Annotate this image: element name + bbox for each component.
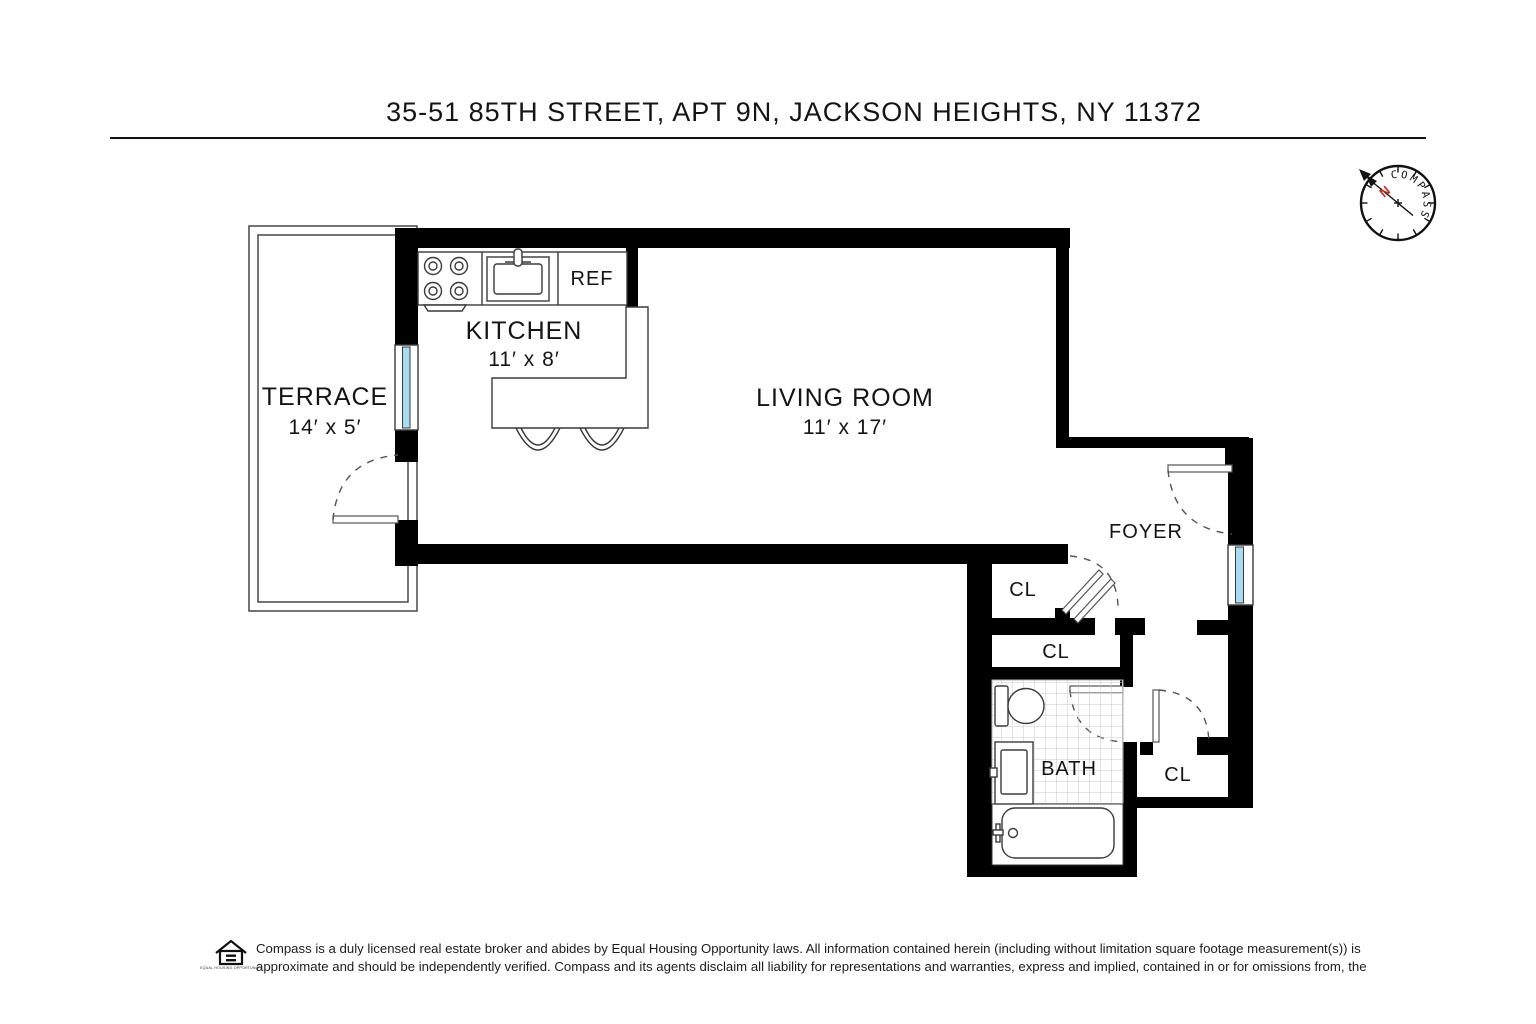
wall-bath-right [1123,742,1137,877]
terrace-label: TERRACE [262,383,388,411]
wall-closet3-top-left [1140,742,1153,755]
wall-top [395,228,1070,248]
door-closet-foyer-bifold [1062,556,1118,623]
stool-icon-2 [580,428,624,450]
stool-icon-1 [516,428,560,450]
door-closet-corner [1153,690,1209,742]
wall-kitchen-stub [626,248,638,307]
wall-entry-jamb [1225,438,1253,468]
toilet-icon [995,686,1044,726]
wall-corridor-left [1120,635,1133,687]
equal-housing-logo: EQUAL HOUSING OPPORTUNITY [200,941,262,970]
bath-label: BATH [1041,758,1097,780]
disclaimer-line-1: Compass is a duly licensed real estate b… [256,941,1361,956]
wall-kitchen-left-upper [395,248,418,345]
wall-closet-column-left [967,544,992,877]
closet-foyer-label: CL [1009,579,1037,601]
disclaimer-line-2: approximate and should be independently … [256,959,1367,974]
living-room-label: LIVING ROOM [756,384,934,412]
window-foyer [1228,545,1253,605]
foyer-label: FOYER [1109,521,1183,543]
wall-foyer-stub [1197,620,1228,635]
bathtub-icon [993,808,1114,858]
kitchen-label: KITCHEN [466,317,583,345]
kitchen-dims: 11′ x 8′ [488,348,560,371]
sink-icon [487,249,549,301]
window-kitchen-glass [403,347,411,428]
terrace-dims: 14′ x 5′ [288,416,361,439]
wall-bath-bottom [967,865,1137,877]
equal-housing-caption: EQUAL HOUSING OPPORTUNITY [200,966,262,970]
vanity-sink-icon [990,742,1033,804]
window-foyer-glass [1236,547,1244,603]
floor-plan-canvas: 35-51 85TH STREET, APT 9N, JACKSON HEIGH… [0,0,1536,1024]
wall-entry [1056,437,1249,448]
closet-corner-label: CL [1164,764,1192,786]
wall-closet3-bottom [1137,797,1253,808]
wall-livingroom-right [1056,248,1069,438]
page-title: 35-51 85TH STREET, APT 9N, JACKSON HEIGH… [386,97,1202,127]
wall-right-lower [1228,605,1253,808]
closet-hall-label: CL [1042,641,1070,663]
wall-closet2-top-block [1115,618,1145,635]
wall-closet3-top-right [1197,737,1228,755]
compass-icon: COMPASS N [1359,166,1435,240]
living-room-dims: 11′ x 17′ [803,416,887,439]
door-terrace [333,455,398,523]
refrigerator-label: REF [571,268,614,290]
window-kitchen [395,345,418,430]
wall-bath-top [992,667,1120,680]
wall-kitchen-left-mid [395,430,418,462]
